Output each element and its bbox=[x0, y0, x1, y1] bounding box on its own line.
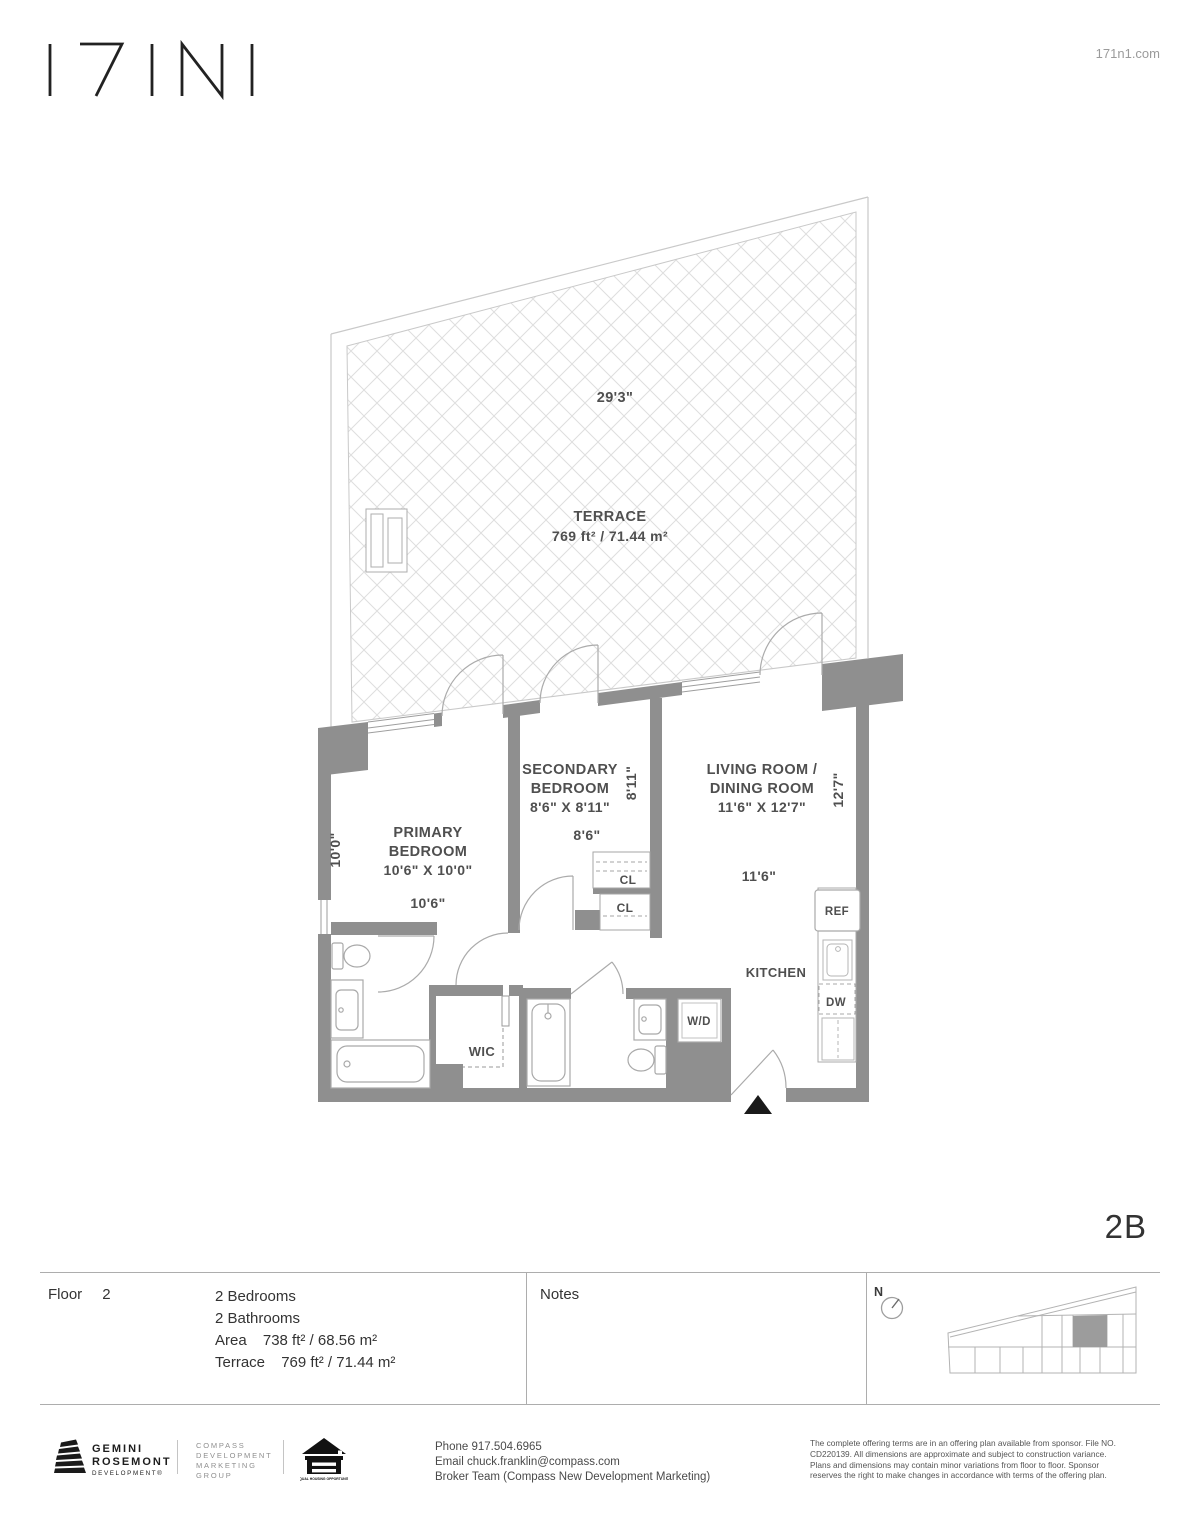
contact-broker: Broker Team (Compass New Development Mar… bbox=[435, 1470, 710, 1485]
footer-divider-2 bbox=[283, 1440, 284, 1474]
gemini-line1: GEMINI bbox=[92, 1443, 172, 1456]
toilet-bowl bbox=[344, 945, 370, 967]
unit-details: 2 Bedrooms 2 Bathrooms Area 738 ft² / 68… bbox=[215, 1286, 395, 1374]
secondary-line1: SECONDARY bbox=[522, 762, 618, 778]
faucet2 bbox=[642, 1017, 646, 1021]
floorplan-sheet: 171n1.com 29'3" TERRACE 769 ft² / 7 bbox=[0, 0, 1200, 1515]
primary-dim-w: 10'6" bbox=[410, 895, 445, 911]
compass-line1: COMPASS bbox=[196, 1441, 272, 1451]
contact-block: Phone 917.504.6965 Email chuck.franklin@… bbox=[435, 1440, 710, 1485]
info-band: Floor 2 2 Bedrooms 2 Bathrooms Area 738 … bbox=[40, 1272, 1160, 1405]
terrace-planter bbox=[366, 509, 407, 572]
notes-label: Notes bbox=[540, 1286, 579, 1303]
kitchen-label: KITCHEN bbox=[746, 965, 807, 980]
unit-label: 2B bbox=[1105, 1208, 1147, 1246]
primary-line1: PRIMARY bbox=[393, 825, 462, 841]
gemini-rosemont-logotype: GEMINI ROSEMONT DEVELOPMENT® bbox=[92, 1443, 172, 1477]
kitchen: REF DW KITCHEN bbox=[746, 888, 860, 1062]
wic-closet: WIC bbox=[463, 996, 509, 1067]
toilet-tank bbox=[332, 943, 343, 969]
gemini-rosemont-icon bbox=[50, 1435, 90, 1479]
toilet2-tank bbox=[655, 1046, 666, 1074]
compass-logotype: COMPASS DEVELOPMENT MARKETING GROUP bbox=[196, 1441, 272, 1481]
area-row: Area 738 ft² / 68.56 m² bbox=[215, 1330, 395, 1352]
terrace-area: 769 ft² / 71.44 m² bbox=[552, 528, 668, 544]
wic-label: WIC bbox=[469, 1044, 496, 1059]
terrace: 29'3" TERRACE 769 ft² / 71.44 m² bbox=[331, 197, 868, 727]
primary-dims: 10'6" X 10'0" bbox=[384, 862, 473, 878]
info-divider-1 bbox=[526, 1273, 527, 1404]
entry-door bbox=[731, 1050, 786, 1095]
washer-dryer: W/D bbox=[678, 999, 721, 1042]
gemini-sub: DEVELOPMENT® bbox=[92, 1470, 172, 1477]
wd-label: W/D bbox=[687, 1016, 711, 1028]
equal-housing-icon: EQUAL HOUSING OPPORTUNITY bbox=[300, 1435, 348, 1483]
living-dim-w: 11'6" bbox=[742, 868, 777, 884]
legal-line2: CD220139. All dimensions are approximate… bbox=[810, 1449, 1116, 1460]
secondary-dim-w: 8'6" bbox=[573, 827, 600, 843]
bathrooms-count: 2 Bathrooms bbox=[215, 1308, 395, 1330]
compass-line2: DEVELOPMENT bbox=[196, 1451, 272, 1461]
bath2-fixtures bbox=[527, 999, 666, 1086]
bath1-fixtures bbox=[331, 943, 430, 1088]
info-divider-2 bbox=[866, 1273, 867, 1404]
legal-line1: The complete offering terms are in an of… bbox=[810, 1438, 1116, 1449]
legal-disclaimer: The complete offering terms are in an of… bbox=[810, 1438, 1116, 1481]
contact-email: Email chuck.franklin@compass.com bbox=[435, 1455, 710, 1470]
secondary-bedroom-door bbox=[519, 876, 573, 930]
legal-line4: reserves the right to make changes in ac… bbox=[810, 1470, 1116, 1481]
gemini-line2: ROSEMONT bbox=[92, 1456, 172, 1469]
terrace-label: Terrace bbox=[215, 1352, 265, 1374]
closet-lower-label: CL bbox=[617, 901, 634, 915]
secondary-dims: 8'6" X 8'11" bbox=[530, 799, 610, 815]
compass-line3: MARKETING bbox=[196, 1461, 272, 1471]
primary-line2: BEDROOM bbox=[389, 844, 468, 860]
area-label: Area bbox=[215, 1330, 247, 1352]
terrace-value: 769 ft² / 71.44 m² bbox=[281, 1352, 395, 1374]
faucet bbox=[339, 1008, 343, 1012]
bathtub-drain bbox=[344, 1061, 350, 1067]
entry-arrow bbox=[744, 1095, 772, 1114]
fridge-label: REF bbox=[825, 906, 849, 918]
bath2-door bbox=[571, 962, 623, 994]
living-line1: LIVING ROOM / bbox=[707, 762, 818, 778]
equal-housing-text: EQUAL HOUSING OPPORTUNITY bbox=[300, 1477, 348, 1481]
floor-label: Floor bbox=[48, 1286, 82, 1303]
secondary-dim-h: 8'11" bbox=[623, 766, 639, 801]
terrace-row: Terrace 769 ft² / 71.44 m² bbox=[215, 1352, 395, 1374]
compass-line4: GROUP bbox=[196, 1471, 272, 1481]
area-value: 738 ft² / 68.56 m² bbox=[263, 1330, 377, 1352]
bedrooms-count: 2 Bedrooms bbox=[215, 1286, 395, 1308]
floor-value: 2 bbox=[102, 1286, 110, 1303]
footer-divider-1 bbox=[177, 1440, 178, 1474]
living-dim-h: 12'7" bbox=[830, 772, 846, 807]
toilet2-bowl bbox=[628, 1049, 654, 1071]
bath1-door bbox=[378, 936, 434, 992]
dishwasher-label: DW bbox=[826, 997, 846, 1009]
legal-line3: Plans and dimensions may contain minor v… bbox=[810, 1460, 1116, 1471]
living-dims: 11'6" X 12'7" bbox=[718, 799, 806, 815]
room-labels: PRIMARY BEDROOM 10'6" X 10'0" 10'6" 10'0… bbox=[327, 762, 846, 911]
floor-row: Floor 2 bbox=[48, 1286, 111, 1303]
contact-phone: Phone 917.504.6965 bbox=[435, 1440, 710, 1455]
primary-dim-h: 10'0" bbox=[327, 832, 343, 867]
terrace-width-dim: 29'3" bbox=[597, 390, 634, 406]
closet-upper-label: CL bbox=[620, 873, 637, 887]
terrace-name: TERRACE bbox=[574, 509, 647, 525]
hall-door bbox=[456, 933, 508, 985]
secondary-line2: BEDROOM bbox=[531, 781, 610, 797]
living-line2: DINING ROOM bbox=[710, 781, 814, 797]
